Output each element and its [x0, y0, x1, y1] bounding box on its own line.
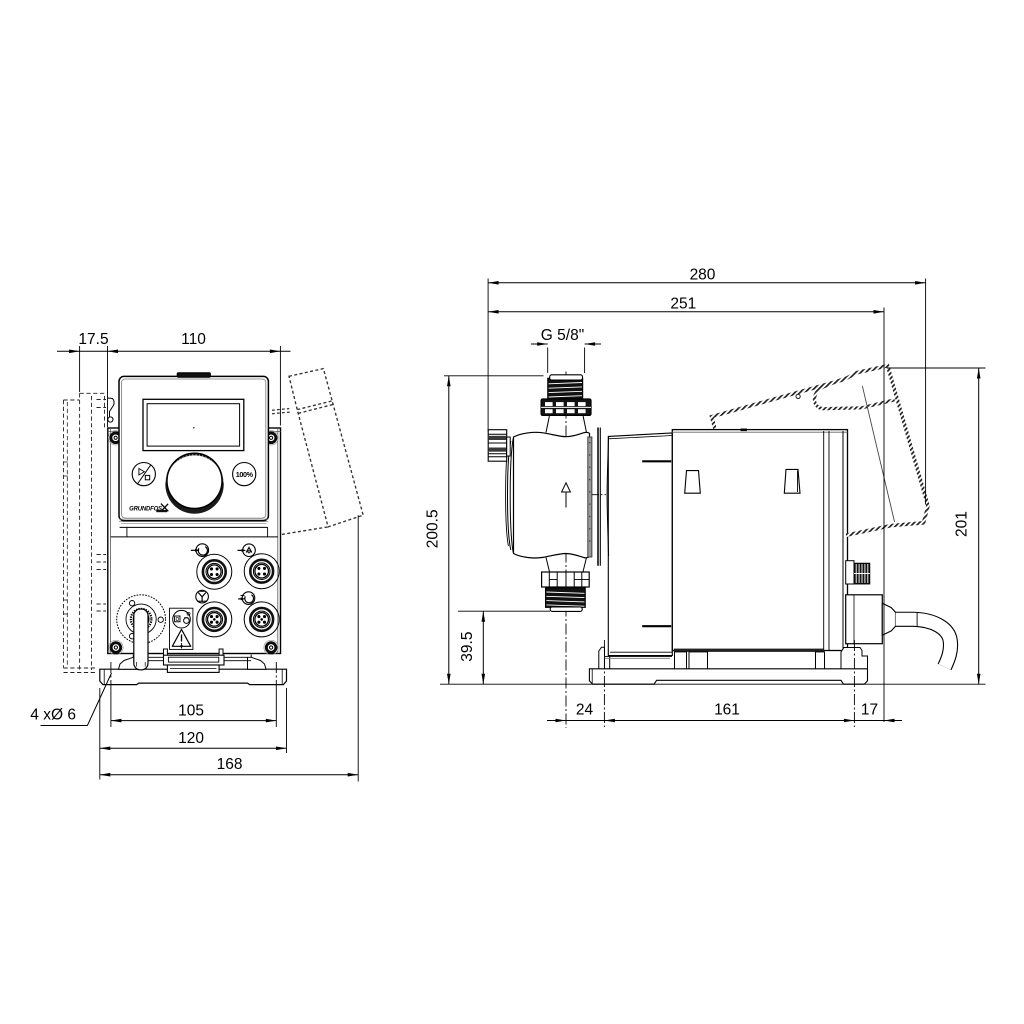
svg-text:168: 168 — [217, 756, 243, 773]
svg-text:17.5: 17.5 — [78, 331, 108, 348]
svg-text:201: 201 — [954, 511, 971, 537]
svg-text:161: 161 — [714, 702, 740, 719]
svg-text:24: 24 — [576, 702, 594, 719]
svg-text:17: 17 — [861, 702, 878, 719]
svg-text:G 5/8": G 5/8" — [541, 327, 584, 344]
svg-text:105: 105 — [178, 702, 204, 719]
svg-text:200.5: 200.5 — [425, 509, 442, 548]
svg-text:110: 110 — [181, 331, 206, 348]
svg-text:39.5: 39.5 — [459, 632, 476, 662]
svg-text:280: 280 — [690, 266, 716, 283]
svg-text:251: 251 — [670, 295, 696, 312]
svg-text:100%: 100% — [236, 470, 254, 479]
svg-text:4 xØ 6: 4 xØ 6 — [30, 707, 76, 724]
svg-text:120: 120 — [178, 730, 204, 747]
